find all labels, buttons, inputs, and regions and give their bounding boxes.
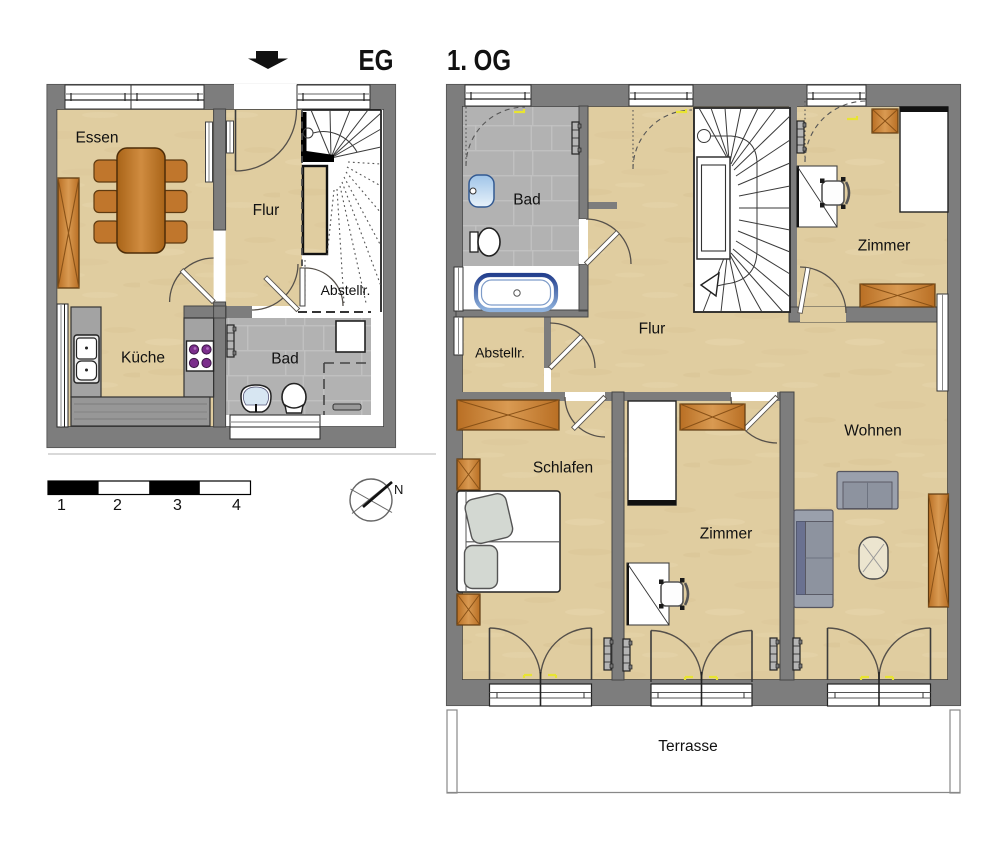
svg-text:Schlafen: Schlafen — [533, 460, 593, 477]
svg-text:EG: EG — [359, 45, 394, 77]
svg-text:1: 1 — [57, 497, 66, 514]
svg-text:Bad: Bad — [513, 192, 541, 209]
svg-text:Abstellr.: Abstellr. — [321, 282, 371, 298]
svg-text:N: N — [394, 482, 403, 497]
svg-text:Flur: Flur — [253, 202, 280, 219]
svg-text:Flur: Flur — [639, 321, 666, 338]
svg-text:4: 4 — [232, 497, 241, 514]
svg-text:3: 3 — [173, 497, 182, 514]
svg-text:Küche: Küche — [121, 350, 165, 367]
svg-text:Terrasse: Terrasse — [658, 738, 717, 755]
svg-text:Zimmer: Zimmer — [700, 526, 753, 543]
svg-text:1. OG: 1. OG — [447, 45, 511, 77]
svg-text:Abstellr.: Abstellr. — [475, 345, 525, 361]
svg-text:Zimmer: Zimmer — [858, 238, 911, 255]
svg-text:Essen: Essen — [75, 130, 118, 147]
svg-text:Wohnen: Wohnen — [844, 423, 901, 440]
svg-text:Bad: Bad — [271, 351, 299, 368]
svg-text:2: 2 — [113, 497, 122, 514]
